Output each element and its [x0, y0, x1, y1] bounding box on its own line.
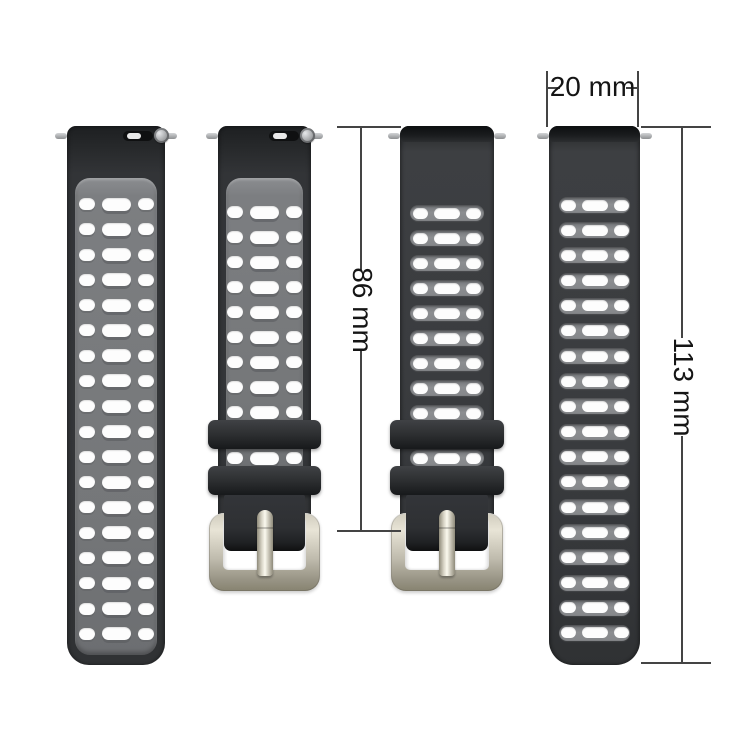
strap-hole-row [75, 349, 157, 363]
spring-bar-fold [400, 126, 494, 142]
strap-hole [102, 349, 131, 362]
strap-hole [466, 453, 481, 464]
strap-hole [582, 376, 608, 387]
strap-hole [79, 501, 95, 513]
strap-hole [227, 406, 243, 418]
strap-hole [434, 208, 460, 219]
strap-hole [227, 231, 243, 243]
strap-hole [102, 374, 131, 387]
strap-hole [286, 452, 302, 464]
strap-hole [561, 426, 576, 437]
strap-hole [79, 299, 95, 311]
strap-hole [413, 208, 428, 219]
strap-hole [79, 603, 95, 615]
strap-hole-row [410, 355, 484, 371]
strap-hole [434, 383, 460, 394]
short-length-dim-line-upper [360, 126, 362, 270]
strap-hole [466, 333, 481, 344]
strap-hole [614, 300, 629, 311]
long-length-dim-label: 113 mm [667, 337, 699, 436]
strap-hole-row [559, 499, 630, 515]
strap-hole [466, 233, 481, 244]
strap-hole [561, 502, 576, 513]
strap-hole-row [410, 230, 484, 246]
strap-hole [227, 381, 243, 393]
strap-hole [582, 627, 608, 638]
strap-hole-row [75, 526, 157, 540]
strap-hole [102, 324, 131, 337]
strap-hole-row [559, 197, 630, 213]
strap-hole [614, 351, 629, 362]
strap-hole [250, 331, 279, 344]
hole-row-between-keepers [226, 451, 303, 465]
strap-hole [138, 426, 154, 438]
strap-hole-row [410, 305, 484, 321]
strap-hole [286, 356, 302, 368]
strap-hole [582, 577, 608, 588]
strap-hole [286, 331, 302, 343]
strap-hole [250, 306, 279, 319]
strap-hole [413, 453, 428, 464]
keeper-loop-1 [208, 420, 321, 449]
strap-hole [413, 358, 428, 369]
strap-hole [582, 502, 608, 513]
strap-hole [561, 275, 576, 286]
strap-hole [138, 628, 154, 640]
strap-hole [79, 552, 95, 564]
strap-hole [582, 476, 608, 487]
strap-hole [582, 451, 608, 462]
strap-hole [614, 577, 629, 588]
strap-hole [561, 401, 576, 412]
strap-hole [413, 233, 428, 244]
strap-hole [582, 325, 608, 336]
spring-bar-pin-left [388, 133, 400, 139]
strap-hole [79, 324, 95, 336]
strap-hole [138, 400, 154, 412]
strap-hole [250, 206, 279, 219]
long-length-ext-bottom [641, 662, 711, 664]
strap-hole-row [226, 205, 303, 219]
strap-hole-row [75, 425, 157, 439]
strap-hole-row [226, 451, 303, 465]
strap-hole [102, 476, 131, 489]
strap-hole [466, 283, 481, 294]
spring-bar-pin-left [537, 133, 549, 139]
strap-hole-row [75, 197, 157, 211]
strap-hole-row [75, 399, 157, 413]
strap-hole [561, 476, 576, 487]
strap-hole [79, 198, 95, 210]
strap-hole [79, 350, 95, 362]
long-length-dim-line-lower [681, 436, 683, 664]
strap-hole [614, 275, 629, 286]
strap-hole [561, 552, 576, 563]
strap-hole [466, 408, 481, 419]
strap-hole-row [559, 549, 630, 565]
width-dim-label: 20 mm [546, 72, 639, 102]
strap-buckle-outer-side [400, 126, 494, 591]
strap-hole [227, 331, 243, 343]
strap-hole-row [410, 205, 484, 221]
long-length-ext-top [641, 126, 711, 128]
strap-hole-row [559, 575, 630, 591]
strap-hole-row [410, 255, 484, 271]
strap-hole [582, 250, 608, 261]
strap-hole [102, 299, 131, 312]
strap-hole [102, 248, 131, 261]
strap-hole [561, 200, 576, 211]
strap-hole [582, 275, 608, 286]
strap-hole [79, 426, 95, 438]
strap-hole-row [559, 600, 630, 616]
short-length-ext-top [337, 126, 401, 128]
strap-hole [466, 308, 481, 319]
strap-hole-row [226, 255, 303, 269]
strap-hole [614, 527, 629, 538]
strap-hole [250, 452, 279, 465]
strap-hole-row [410, 280, 484, 296]
hole-rows [559, 197, 630, 641]
strap-hole [286, 206, 302, 218]
strap-hole [138, 198, 154, 210]
strap-hole [561, 451, 576, 462]
strap-hole [79, 628, 95, 640]
strap-hole [138, 527, 154, 539]
strap-hole [413, 258, 428, 269]
strap-hole [614, 602, 629, 613]
strap-hole [582, 426, 608, 437]
strap-hole [582, 200, 608, 211]
spring-bar-pin-right [494, 133, 506, 139]
strap-hole [614, 225, 629, 236]
strap-hole-row [75, 475, 157, 489]
strap-hole [413, 383, 428, 394]
strap-hole [102, 501, 131, 514]
strap-hole [614, 200, 629, 211]
spring-bar-pin-left [55, 133, 67, 139]
strap-hole [434, 308, 460, 319]
strap-hole-row [226, 330, 303, 344]
strap-hole [561, 577, 576, 588]
strap-hole [614, 627, 629, 638]
keeper-loop-2 [208, 466, 321, 495]
strap-hole-row [75, 551, 157, 565]
strap-hole [286, 231, 302, 243]
strap-hole [466, 258, 481, 269]
strap-hole-row [75, 627, 157, 641]
strap-hole [138, 324, 154, 336]
strap-hole [434, 258, 460, 269]
strap-hole [102, 627, 131, 640]
strap-hole-row [226, 230, 303, 244]
buckle-prong [257, 510, 273, 576]
strap-hole-row [75, 298, 157, 312]
strap-hole [466, 358, 481, 369]
strap-hole [614, 426, 629, 437]
strap-hole [434, 233, 460, 244]
strap-hole-row [410, 450, 484, 466]
strap-hole [561, 250, 576, 261]
strap-hole [413, 283, 428, 294]
strap-hole [227, 306, 243, 318]
hole-rows [226, 205, 303, 419]
strap-hole-row [226, 380, 303, 394]
short-length-ext-bottom [337, 530, 401, 532]
strap-hole [434, 358, 460, 369]
strap-hole [138, 451, 154, 463]
quick-release-knob [154, 128, 169, 143]
strap-hole [138, 249, 154, 261]
strap-hole [250, 281, 279, 294]
strap-hole [138, 476, 154, 488]
strap-hole [286, 281, 302, 293]
strap-hole [79, 375, 95, 387]
strap-hole [138, 375, 154, 387]
strap-hole [614, 376, 629, 387]
strap-hole [102, 400, 131, 413]
short-length-dim-label: 86 mm [346, 267, 378, 353]
strap-hole [138, 501, 154, 513]
strap-hole-row [75, 500, 157, 514]
strap-hole-row [75, 273, 157, 287]
strap-hole [582, 225, 608, 236]
strap-hole [102, 450, 131, 463]
strap-hole [561, 325, 576, 336]
strap-hole [561, 300, 576, 311]
strap-hole [614, 476, 629, 487]
strap-hole-row [559, 449, 630, 465]
strap-hole-row [559, 222, 630, 238]
strap-hole [413, 333, 428, 344]
strap-hole [102, 602, 131, 615]
strap-long-inner-side [67, 126, 165, 665]
strap-hole-row [75, 602, 157, 616]
strap-hole [138, 274, 154, 286]
strap-hole [561, 376, 576, 387]
strap-hole-row [226, 405, 303, 419]
strap-hole [102, 551, 131, 564]
strap-hole [614, 250, 629, 261]
strap-hole-row [559, 424, 630, 440]
strap-hole [286, 406, 302, 418]
strap-hole [102, 198, 131, 211]
spring-bar-pin-right [640, 133, 652, 139]
strap-hole [79, 577, 95, 589]
strap-hole [614, 325, 629, 336]
strap-hole-row [559, 474, 630, 490]
strap-hole [102, 526, 131, 539]
buckle-prong [439, 510, 455, 576]
strap-hole [582, 351, 608, 362]
strap-hole [413, 408, 428, 419]
strap-hole-row [559, 373, 630, 389]
strap-hole [286, 306, 302, 318]
strap-hole [614, 451, 629, 462]
strap-hole [250, 231, 279, 244]
strap-hole [434, 408, 460, 419]
strap-hole-row [410, 405, 484, 421]
strap-hole [79, 400, 95, 412]
strap-hole [227, 281, 243, 293]
strap-hole [138, 223, 154, 235]
keeper-loop-1 [390, 420, 504, 449]
strap-hole [413, 308, 428, 319]
strap-hole [582, 552, 608, 563]
strap-hole-row [75, 248, 157, 262]
strap-hole-row [226, 280, 303, 294]
strap-hole [434, 333, 460, 344]
strap-hole-row [559, 625, 630, 641]
hole-rows [410, 205, 484, 421]
quick-release-slot [123, 131, 153, 141]
strap-hole-row [559, 398, 630, 414]
strap-hole [79, 476, 95, 488]
strap-hole [561, 527, 576, 538]
strap-hole-row [75, 323, 157, 337]
strap-hole-row [226, 355, 303, 369]
strap-hole [466, 383, 481, 394]
strap-hole [250, 256, 279, 269]
strap-hole [79, 274, 95, 286]
strap-hole-row [559, 298, 630, 314]
strap-hole [138, 603, 154, 615]
strap-hole [434, 453, 460, 464]
strap-hole-row [75, 576, 157, 590]
strap-hole [250, 406, 279, 419]
strap-hole [102, 223, 131, 236]
long-length-dim-line-upper [681, 126, 683, 338]
quick-release-knob [300, 128, 315, 143]
strap-hole-row [75, 222, 157, 236]
strap-hole-row [559, 323, 630, 339]
short-length-dim-line-lower [360, 350, 362, 532]
strap-hole [138, 552, 154, 564]
strap-hole [102, 273, 131, 286]
quick-release-slot [269, 131, 299, 141]
strap-hole [79, 223, 95, 235]
strap-hole [79, 451, 95, 463]
strap-hole [614, 502, 629, 513]
strap-hole [614, 401, 629, 412]
strap-hole-row [559, 247, 630, 263]
strap-hole [582, 401, 608, 412]
strap-hole [466, 208, 481, 219]
strap-hole [79, 249, 95, 261]
strap-hole-row [410, 380, 484, 396]
strap-hole-row [559, 524, 630, 540]
strap-hole [227, 256, 243, 268]
strap-hole-row [410, 330, 484, 346]
strap-hole-row [75, 374, 157, 388]
strap-long-outer-side [549, 126, 640, 665]
strap-hole [561, 602, 576, 613]
strap-hole [561, 627, 576, 638]
strap-hole [582, 300, 608, 311]
strap-hole [227, 356, 243, 368]
strap-hole [227, 206, 243, 218]
strap-inner-panel [75, 178, 157, 655]
strap-hole [102, 577, 131, 590]
watch-strap-dimension-diagram: 20 mm 86 mm 113 mm [0, 0, 750, 750]
strap-buckle-inner-side [218, 126, 311, 591]
strap-hole [250, 356, 279, 369]
keeper-loop-2 [390, 466, 504, 495]
strap-hole [102, 425, 131, 438]
strap-hole [138, 577, 154, 589]
strap-hole [582, 527, 608, 538]
strap-hole-row [559, 348, 630, 364]
spring-bar-fold [549, 126, 640, 142]
strap-hole [561, 351, 576, 362]
hole-row-between-keepers [410, 450, 484, 466]
hole-rows [75, 197, 157, 641]
strap-hole [434, 283, 460, 294]
strap-hole [79, 527, 95, 539]
strap-hole [250, 381, 279, 394]
strap-hole [286, 381, 302, 393]
strap-hole-row [559, 273, 630, 289]
strap-hole [561, 225, 576, 236]
strap-hole [227, 452, 243, 464]
strap-hole [286, 256, 302, 268]
strap-hole [138, 350, 154, 362]
strap-hole-row [226, 305, 303, 319]
strap-hole-row [75, 450, 157, 464]
spring-bar-pin-left [206, 133, 218, 139]
strap-hole [582, 602, 608, 613]
strap-hole [614, 552, 629, 563]
strap-hole [138, 299, 154, 311]
